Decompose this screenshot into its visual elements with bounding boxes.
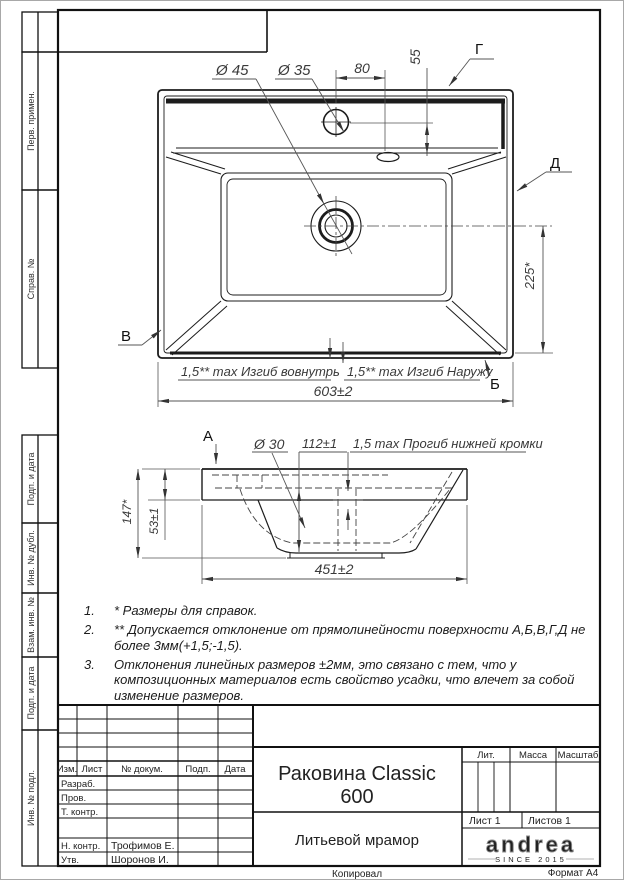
lit-label: Лит.: [477, 750, 494, 761]
dim-53: 53±1: [147, 508, 161, 535]
name-nkontr: Трофимов Е.: [111, 840, 174, 852]
surface-label-d: Д: [550, 155, 560, 172]
dim-d45: Ø 45: [215, 62, 249, 79]
note-bend-out: 1,5** max Изгиб Наружу: [347, 364, 494, 379]
dim-55: 55: [407, 49, 423, 65]
surface-label-g: Г: [475, 41, 483, 58]
dim-80: 80: [354, 60, 370, 76]
strip-label: Подп. и дата: [26, 666, 36, 719]
name-utv: Шоронов И.: [111, 854, 169, 866]
sheet-label: Лист 1: [469, 815, 501, 827]
strip-label: Инв. № дубл.: [26, 530, 36, 586]
col-doc: № докум.: [121, 764, 163, 775]
strip-label: Перв. примен.: [26, 91, 36, 151]
drawing-sheet: Перв. примен. Справ. № Подп. и дата Инв.…: [0, 0, 624, 880]
role-utv: Утв.: [61, 855, 79, 866]
note-text: ** Допускается отклонение от прямолинейн…: [114, 622, 589, 654]
dim-451: 451±2: [315, 561, 354, 577]
copied-label: Копировал: [332, 869, 382, 880]
section-label-a: А: [203, 428, 213, 445]
surface-label-v: В: [121, 328, 131, 345]
dim-225: 225*: [522, 262, 537, 291]
col-data: Дата: [224, 764, 246, 775]
role-nkontr: Н. контр.: [61, 841, 100, 852]
strip-label: Инв. № подл.: [26, 770, 36, 826]
drawing-notes: 1. * Размеры для справок. 2. ** Допускае…: [84, 603, 589, 707]
note-1: 1. * Размеры для справок.: [84, 603, 589, 619]
strip-label: Подп. и дата: [26, 452, 36, 505]
role-tkontr: Т. контр.: [61, 807, 98, 818]
technical-drawing: Перв. примен. Справ. № Подп. и дата Инв.…: [0, 0, 624, 880]
format-label: Формат А4: [548, 868, 599, 879]
dim-112: 112±1: [302, 436, 337, 451]
col-list: Лист: [82, 764, 103, 775]
note-bend-in: 1,5** max Изгиб вовнутрь: [181, 364, 340, 379]
note-text: * Размеры для справок.: [114, 603, 589, 619]
note-text: Отклонения линейных размеров ±2мм, это с…: [114, 657, 589, 705]
note-number: 1.: [84, 603, 114, 619]
col-podp: Подп.: [185, 764, 210, 775]
massa-label: Масса: [519, 750, 548, 761]
role-razrab: Разраб.: [61, 779, 95, 790]
sheets-label: Листов 1: [528, 815, 571, 827]
dim-d30: Ø 30: [253, 436, 285, 452]
dim-603: 603±2: [314, 383, 353, 399]
note-3: 3. Отклонения линейных размеров ±2мм, эт…: [84, 657, 589, 705]
doc-title-line1: Раковина Classic: [278, 763, 436, 785]
note-2: 2. ** Допускается отклонение от прямолин…: [84, 622, 589, 654]
role-prov: Пров.: [61, 793, 86, 804]
logo-text: andrea: [486, 832, 576, 857]
dim-d35: Ø 35: [277, 62, 311, 79]
col-izm: Изм.: [57, 764, 77, 775]
dim-147: 147*: [120, 499, 134, 524]
andrea-logo: andrea SINCE 2015: [468, 832, 594, 864]
masshtab-label: Масштаб: [558, 750, 599, 761]
note-number: 3.: [84, 657, 114, 705]
note-number: 2.: [84, 622, 114, 654]
note-sag: 1,5 max Прогиб нижней кромки: [353, 436, 543, 451]
material: Литьевой мрамор: [295, 832, 419, 849]
strip-label: Взам. инв. №: [26, 597, 36, 653]
doc-title-line2: 600: [340, 786, 373, 808]
strip-label: Справ. №: [26, 258, 36, 299]
logo-subtext: SINCE 2015: [495, 855, 567, 864]
